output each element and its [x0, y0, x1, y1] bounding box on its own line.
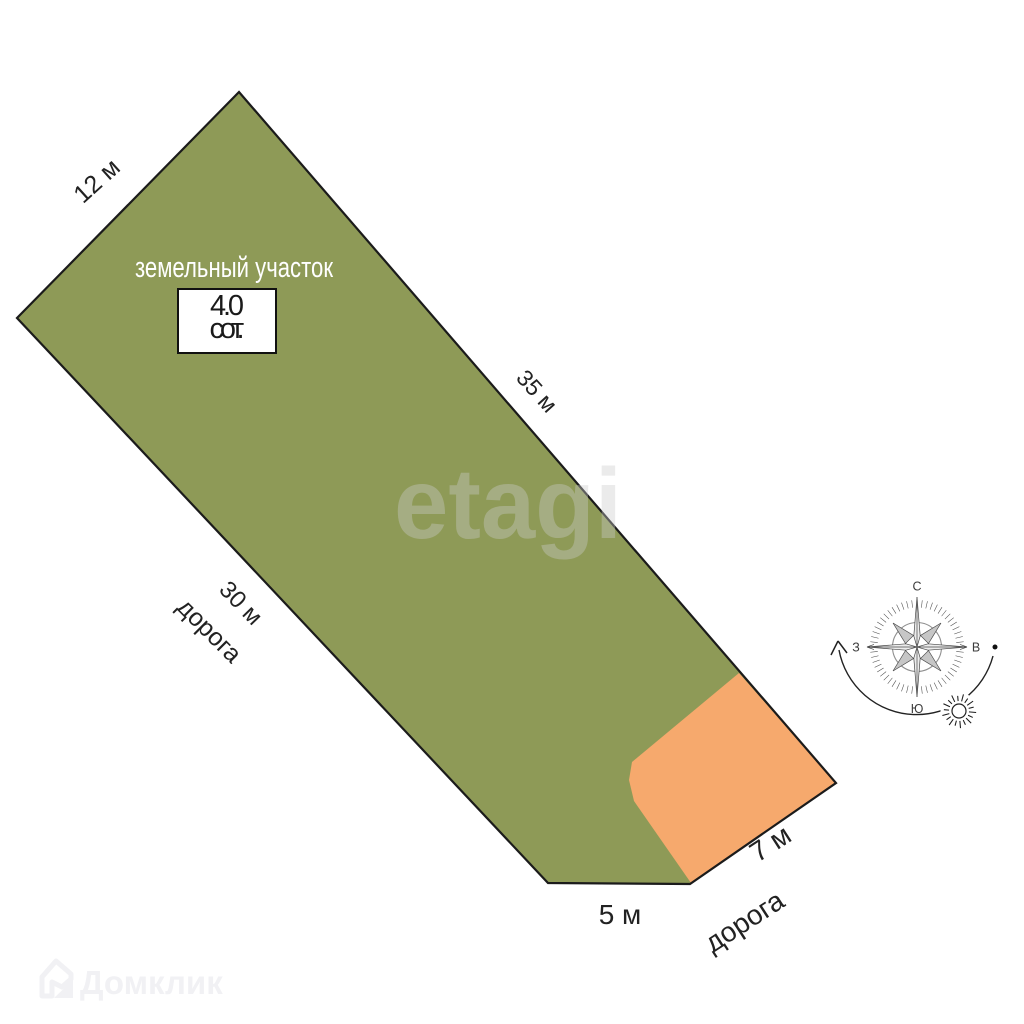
svg-text:сот.: сот. — [210, 313, 245, 345]
svg-text:35 м: 35 м — [511, 365, 562, 418]
svg-text:12 м: 12 м — [68, 153, 125, 209]
svg-text:5 м: 5 м — [599, 899, 642, 930]
svg-text:дорога: дорога — [699, 884, 790, 958]
svg-text:З: З — [852, 641, 860, 655]
svg-text:Домклик: Домклик — [80, 964, 223, 1001]
svg-text:земельный участок: земельный участок — [135, 252, 333, 284]
svg-text:С: С — [912, 580, 921, 594]
svg-text:В: В — [972, 641, 980, 655]
svg-text:etagi: etagi — [394, 448, 622, 560]
